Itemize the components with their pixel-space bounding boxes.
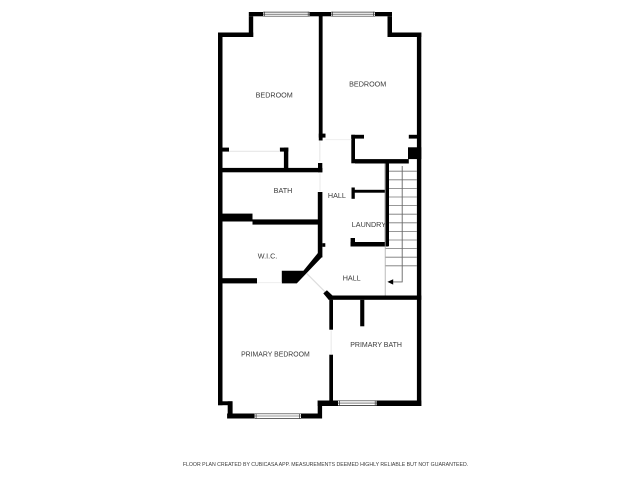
svg-text:HALL: HALL bbox=[328, 191, 346, 200]
svg-text:BATH: BATH bbox=[274, 186, 293, 195]
svg-text:W.I.C.: W.I.C. bbox=[258, 251, 278, 260]
svg-text:PRIMARY BEDROOM: PRIMARY BEDROOM bbox=[241, 352, 310, 359]
svg-text:FLOOR PLAN CREATED BY CUBICASA: FLOOR PLAN CREATED BY CUBICASA APP. MEAS… bbox=[183, 462, 468, 468]
svg-text:HALL: HALL bbox=[343, 273, 361, 282]
svg-text:BEDROOM: BEDROOM bbox=[256, 90, 293, 99]
svg-text:LAUNDRY: LAUNDRY bbox=[352, 220, 386, 229]
svg-text:PRIMARY BATH: PRIMARY BATH bbox=[350, 342, 402, 349]
svg-text:BEDROOM: BEDROOM bbox=[349, 80, 386, 89]
